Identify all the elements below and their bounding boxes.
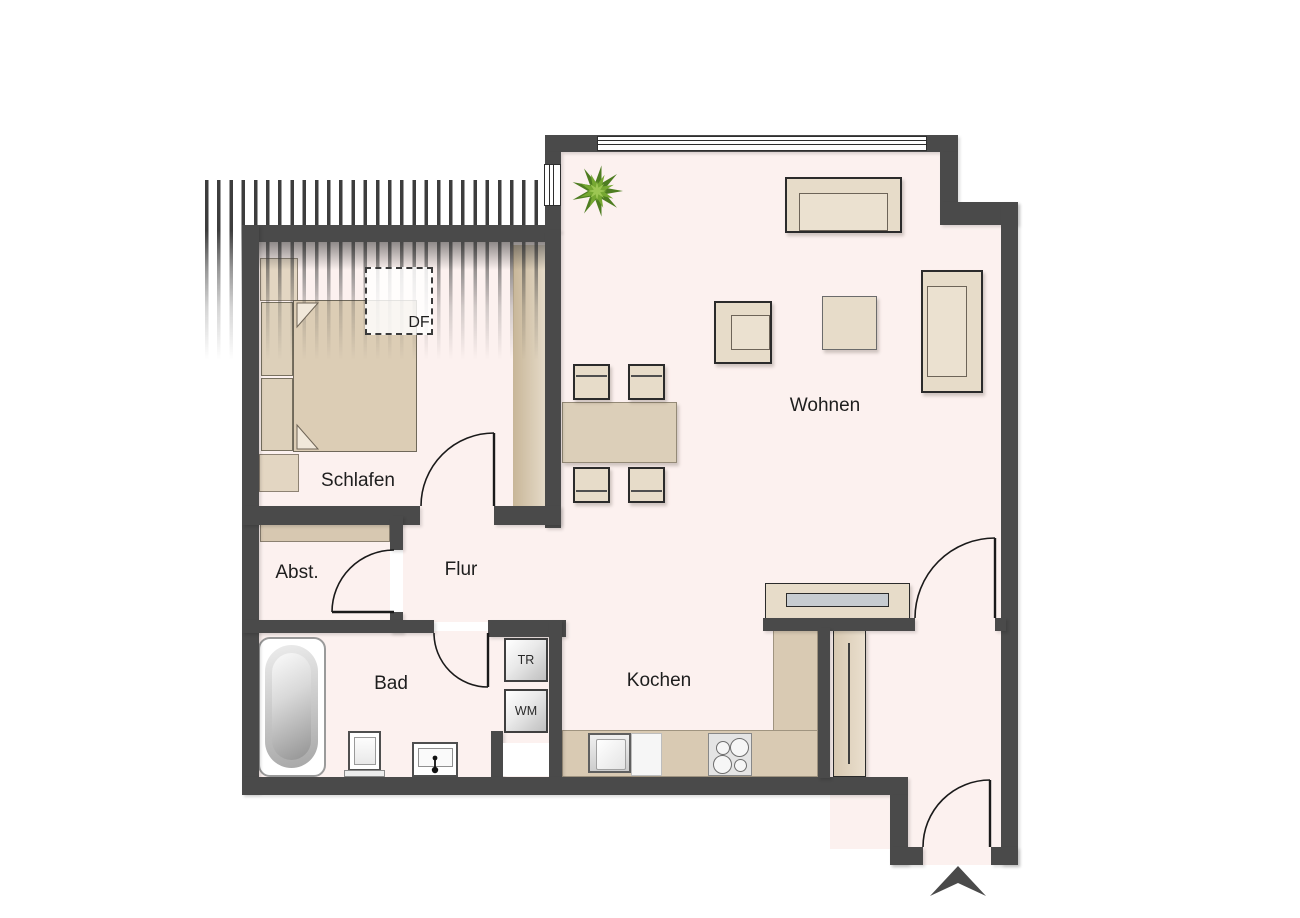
room-label-schlafen: Schlafen (321, 470, 395, 492)
pillow-icon (297, 425, 318, 449)
marker-label-trockner: TR (518, 653, 535, 667)
room-label-flur: Flur (445, 559, 478, 581)
marker-label-waschmaschine: WM (515, 704, 537, 718)
room-label-abstellraum: Abst. (275, 562, 318, 584)
room-label-kochen: Kochen (627, 670, 691, 692)
faucet-icon (432, 756, 438, 774)
floor-plan: Schlafen Wohnen Flur Abst. Bad Kochen DF… (0, 0, 1300, 918)
door-arc-abstellraum (332, 550, 394, 612)
pillow-icon (297, 303, 318, 327)
overlay-graphics (0, 0, 1300, 918)
marker-label-dachfenster: DF (408, 314, 429, 332)
door-arc-bad (434, 633, 488, 687)
plant-icon (573, 165, 623, 216)
door-arc-entry (923, 780, 990, 847)
entrance-arrow-icon (930, 866, 986, 896)
room-label-wohnen: Wohnen (790, 395, 860, 417)
door-arc-wohnen (915, 538, 995, 618)
room-label-bad: Bad (374, 673, 408, 695)
door-arc-schlafen (421, 433, 494, 506)
